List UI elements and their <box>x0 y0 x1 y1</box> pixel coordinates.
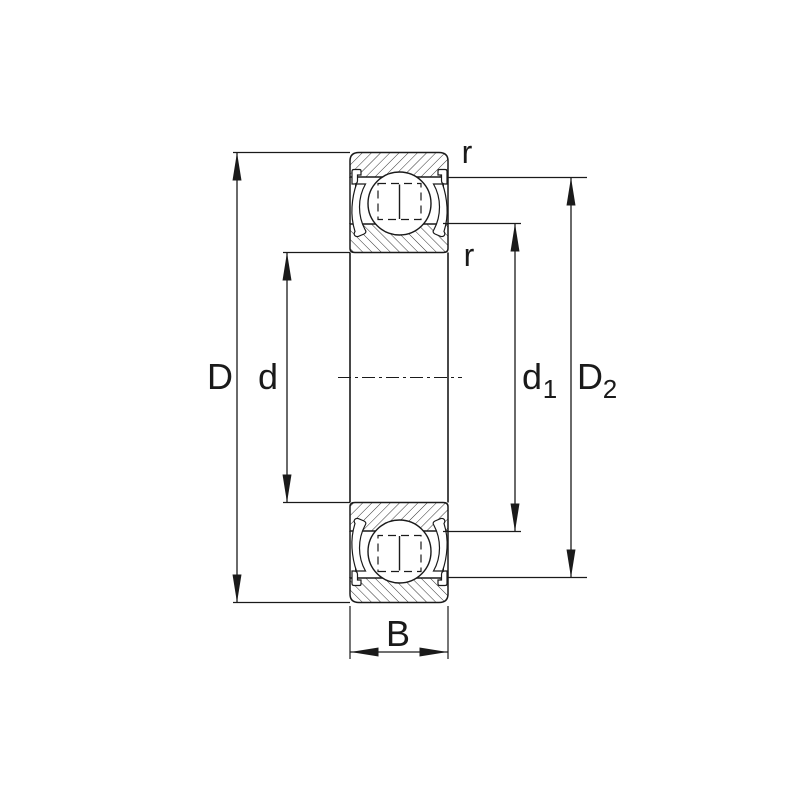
label-outer-shoulder-subscript: 2 <box>603 374 617 404</box>
bearing-diagram-svg: D d d 1 D 2 B r r <box>0 0 800 800</box>
label-width: B <box>386 613 410 654</box>
label-inner-shoulder: d <box>522 356 542 397</box>
label-radius-inner: r <box>464 237 475 273</box>
dimension-D <box>233 153 351 603</box>
label-radius-outer: r <box>462 134 473 170</box>
bearing-dimension-diagram: D d d 1 D 2 B r r <box>0 0 800 800</box>
label-bore-diameter: d <box>258 356 278 397</box>
label-inner-shoulder-subscript: 1 <box>543 374 557 404</box>
label-outer-diameter: D <box>207 356 233 397</box>
bearing-bottom-section <box>350 503 448 603</box>
dimension-d1 <box>443 224 521 532</box>
bearing-top-section <box>350 153 448 253</box>
label-outer-shoulder: D <box>577 356 603 397</box>
